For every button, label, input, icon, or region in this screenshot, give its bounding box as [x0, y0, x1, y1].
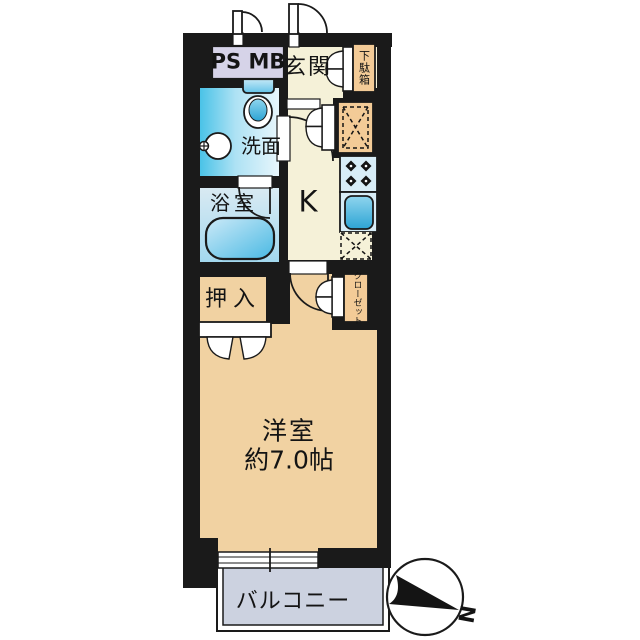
washroom-floor — [196, 80, 284, 184]
compass-icon — [387, 559, 463, 635]
main-room-size-label: 約7.0帖 — [244, 448, 334, 473]
wall-oshiire-right — [266, 262, 290, 324]
wall-left — [183, 47, 200, 560]
stove-icon — [340, 156, 377, 192]
kitchen-label: K — [298, 188, 317, 217]
floorplan: PS MB 玄関 下駄箱 洗面 浴室 K 押入 クローゼット 洋室 約7.0帖 … — [0, 0, 640, 640]
ps-door-leaf — [233, 11, 242, 34]
oshiire-label: 押入 — [205, 289, 261, 311]
yokushitsu-label: 浴室 — [210, 193, 258, 213]
entrance-door-gap — [289, 33, 299, 47]
storage-door-frame — [322, 105, 335, 150]
wall-bottom-left-block — [183, 538, 218, 588]
bathtub-icon — [206, 218, 274, 259]
main-room-label: 洋室 — [262, 419, 316, 444]
getabako-label: 下駄箱 — [359, 50, 370, 86]
balcony-label: バルコニー — [236, 591, 351, 613]
closet-label: クローゼット — [352, 271, 361, 325]
bathroom-door-opening — [238, 176, 272, 188]
room-door-opening — [289, 261, 327, 274]
wall-bottom-right — [318, 548, 391, 568]
compass-north-label: N — [454, 604, 478, 625]
floorplan-canvas — [0, 0, 640, 640]
washer-space — [340, 232, 372, 260]
genkan-label: 玄関 — [284, 57, 332, 79]
genkan-step — [287, 99, 320, 109]
psmb-label: PS MB — [211, 52, 286, 73]
entrance-door-leaf — [289, 4, 298, 34]
senmen-label: 洗面 — [241, 136, 281, 156]
storage-space — [306, 102, 373, 153]
kitchen-sink-icon — [340, 192, 377, 232]
balcony-window — [218, 548, 318, 572]
